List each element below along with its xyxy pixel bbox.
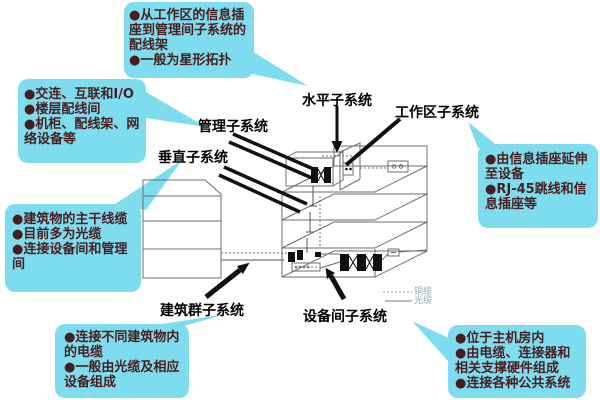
callout-bullet: ●连接各种公共系统 [455, 376, 579, 391]
label-work-area-subsystem: 工作区子系统 [395, 102, 479, 122]
tail-management-notes [146, 92, 206, 127]
tail-vertical-notes [112, 160, 182, 210]
callout-campus-notes: ●连接不同建筑物内的电缆 ●一般由光缆及相应设备组成 [55, 324, 189, 398]
patch-panel-b [324, 167, 331, 183]
callout-bullet: ●交连、互联和I/O [24, 87, 140, 102]
callout-bullet: ●机柜、配线架、网络设备等 [24, 117, 140, 147]
tail-horizontal-notes [247, 48, 308, 86]
label-campus-subsystem: 建筑群子系统 [160, 300, 244, 320]
campus-arrow [206, 263, 250, 297]
callout-work-area-notes: ●由信息插座延伸至设备 ●RJ-45跳线和信息插座等 [478, 144, 598, 228]
equipment-rack-3 [373, 254, 382, 271]
equipment-rack-2 [357, 254, 366, 271]
callout-bullet: ●连接设备间和管理间 [12, 242, 134, 272]
callout-bullet: ●一般为星形拓扑 [129, 53, 249, 68]
campus-connection-lines [221, 253, 288, 260]
structured-cabling-diagram: ●从工作区的信息插座到管理间子系统的配线架 ●一般为星形拓扑 ●交连、互联和I/… [0, 0, 600, 400]
equipment-room-arrow [326, 268, 345, 299]
callout-bullet: ●位于主机房内 [455, 331, 579, 346]
callout-bullet: ●由电缆、连接器和相关支撑硬件组成 [455, 346, 579, 376]
equipment-rack-1 [340, 254, 349, 271]
label-vertical-subsystem: 垂直子系统 [158, 147, 228, 167]
management-pointer-lines [229, 134, 318, 178]
callout-vertical-notes: ●建筑物的主干线缆 ●目前多为光缆 ●连接设备间和管理间 [5, 204, 141, 292]
legend-lines [383, 292, 412, 301]
callout-bullet: ●RJ-45跳线和信息插座等 [485, 182, 591, 212]
callout-bullet: ●由信息插座延伸至设备 [485, 152, 591, 182]
legend-fiber-label: 光缆 [414, 297, 432, 306]
callout-management-notes: ●交连、互联和I/O ●楼层配线间 ●机柜、配线架、网络设备等 [18, 79, 146, 163]
cross-connect-icon [318, 169, 324, 181]
callout-bullet: ●楼层配线间 [24, 102, 140, 117]
tail-equipment-room-notes [412, 321, 449, 362]
equipment-room-drawing [288, 249, 427, 271]
callout-bullet: ●一般由光缆及相应设备组成 [64, 360, 180, 390]
callout-bullet: ●连接不同建筑物内的电缆 [64, 330, 180, 360]
callout-bullet: ●建筑物的主干线缆 [12, 212, 134, 227]
callout-bullet: ●目前多为光缆 [12, 227, 134, 242]
label-equipment-room-subsystem: 设备间子系统 [303, 306, 387, 326]
callout-bullet: ●从工作区的信息插座到管理间子系统的配线架 [129, 8, 249, 53]
vertical-pointer-lines [219, 167, 307, 212]
callout-horizontal-notes: ●从工作区的信息插座到管理间子系统的配线架 ●一般为星形拓扑 [124, 2, 254, 78]
callout-equipment-room-notes: ●位于主机房内 ●由电缆、连接器和相关支撑硬件组成 ●连接各种公共系统 [448, 325, 586, 398]
label-horizontal-subsystem: 水平子系统 [302, 90, 372, 110]
work-area-pointer-line [346, 119, 400, 165]
label-management-subsystem: 管理子系统 [198, 116, 268, 136]
